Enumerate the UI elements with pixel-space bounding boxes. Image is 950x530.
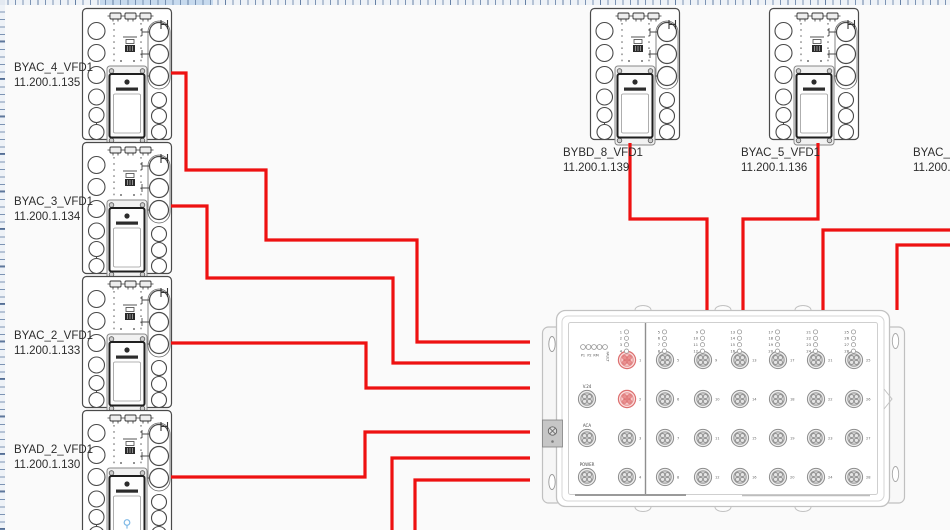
switch-port-13[interactable] bbox=[731, 351, 748, 368]
connection-line-BYAC_4_VFD1[interactable] bbox=[171, 73, 530, 342]
svg-text:26: 26 bbox=[866, 398, 871, 402]
svg-text:19: 19 bbox=[768, 343, 773, 347]
switch-port-15[interactable] bbox=[731, 429, 748, 446]
switch-port-power[interactable] bbox=[578, 468, 595, 485]
switch-port-26[interactable] bbox=[845, 390, 862, 407]
switch-port-2[interactable] bbox=[618, 390, 635, 407]
device-name: BYAC_3_VFD1 bbox=[14, 195, 93, 210]
svg-text:5: 5 bbox=[677, 359, 679, 363]
switch-port-8[interactable] bbox=[656, 468, 673, 485]
switch-port-25[interactable] bbox=[845, 351, 862, 368]
connection-line-BYAC_6_[interactable] bbox=[897, 245, 950, 310]
svg-text:23: 23 bbox=[806, 343, 811, 347]
device-ip: 11.200.1.133 bbox=[14, 344, 93, 359]
device-label-byac3[interactable]: BYAC_3_VFD1 11.200.1.134 bbox=[14, 195, 93, 225]
switch-port-4[interactable] bbox=[618, 468, 635, 485]
device-name: BYAC_4_VFD1 bbox=[14, 61, 93, 76]
device-label-byac5[interactable]: BYAC_5_VFD1 11.200.1.136 bbox=[741, 146, 820, 176]
device-ip: 11.200.1 bbox=[913, 161, 950, 176]
svg-text:16: 16 bbox=[752, 476, 757, 480]
diagram-canvas[interactable]: P1P2RMFAULT V.24ACAPOWER 112233445566778… bbox=[0, 0, 950, 530]
ruler-left bbox=[0, 0, 5, 530]
switch-port-11[interactable] bbox=[694, 429, 711, 446]
device-label-byac2[interactable]: BYAC_2_VFD1 11.200.1.133 bbox=[14, 329, 93, 359]
svg-text:7: 7 bbox=[677, 437, 679, 441]
device-name: BYAC_2_VFD1 bbox=[14, 329, 93, 344]
connection-line-BYAC_2_VFD1[interactable] bbox=[171, 343, 530, 388]
svg-text:2: 2 bbox=[639, 398, 641, 402]
svg-text:RM: RM bbox=[593, 354, 598, 358]
vfd-device-byac5[interactable] bbox=[770, 9, 859, 146]
switch-port-1[interactable] bbox=[618, 351, 635, 368]
connection-line-BYAC_3_VFD1[interactable] bbox=[171, 206, 530, 363]
svg-text:28: 28 bbox=[866, 476, 871, 480]
svg-text:17: 17 bbox=[790, 359, 795, 363]
svg-text:3: 3 bbox=[620, 343, 622, 347]
switch-port-17[interactable] bbox=[769, 351, 786, 368]
device-ip: 11.200.1.134 bbox=[14, 210, 93, 225]
device-ip: 11.200.1.130 bbox=[14, 458, 93, 473]
switch-port-aca[interactable] bbox=[578, 429, 595, 446]
connection-line-BYAD_2_VFD1[interactable] bbox=[171, 432, 530, 477]
svg-text:18: 18 bbox=[790, 398, 795, 402]
device-label-byac6[interactable]: BYAC_6_ 11.200.1 bbox=[913, 146, 950, 176]
switch-port-6[interactable] bbox=[656, 390, 673, 407]
svg-text:14: 14 bbox=[730, 337, 735, 341]
vfd-device-byac2[interactable] bbox=[83, 277, 172, 414]
switch-port-14[interactable] bbox=[731, 390, 748, 407]
ethernet-switch[interactable]: P1P2RMFAULT V.24ACAPOWER 112233445566778… bbox=[543, 306, 905, 512]
svg-text:ACA: ACA bbox=[583, 423, 591, 428]
switch-port-16[interactable] bbox=[731, 468, 748, 485]
device-name: BYBD_8_VFD1 bbox=[563, 146, 643, 161]
svg-text:27: 27 bbox=[844, 343, 849, 347]
svg-text:15: 15 bbox=[752, 437, 757, 441]
svg-text:25: 25 bbox=[866, 359, 871, 363]
switch-port-20[interactable] bbox=[769, 468, 786, 485]
svg-text:1: 1 bbox=[639, 359, 641, 363]
switch-port-9[interactable] bbox=[694, 351, 711, 368]
vfd-device-byac3[interactable] bbox=[83, 143, 172, 280]
vfd-device-byac4[interactable] bbox=[83, 9, 172, 146]
svg-text:POWER: POWER bbox=[580, 462, 595, 467]
device-ip: 11.200.1.135 bbox=[14, 76, 93, 91]
connection-line-BYAC_6_[interactable] bbox=[823, 230, 950, 310]
switch-port-19[interactable] bbox=[769, 429, 786, 446]
ruler-highlight bbox=[100, 0, 213, 5]
switch-port-22[interactable] bbox=[807, 390, 824, 407]
device-name: BYAD_2_VFD1 bbox=[14, 443, 93, 458]
connection-line-offscreen-bottom-1[interactable] bbox=[392, 458, 530, 530]
switch-port-23[interactable] bbox=[807, 429, 824, 446]
svg-text:14: 14 bbox=[752, 398, 757, 402]
switch-port-28[interactable] bbox=[845, 468, 862, 485]
device-label-byac4[interactable]: BYAC_4_VFD1 11.200.1.135 bbox=[14, 61, 93, 91]
svg-text:3: 3 bbox=[639, 437, 641, 441]
svg-text:25: 25 bbox=[844, 330, 849, 334]
connection-line-offscreen-bottom-2[interactable] bbox=[415, 480, 530, 530]
svg-text:28: 28 bbox=[844, 350, 849, 354]
svg-text:FAULT: FAULT bbox=[606, 352, 610, 363]
device-label-byad2[interactable]: BYAD_2_VFD1 11.200.1.130 bbox=[14, 443, 93, 473]
svg-text:27: 27 bbox=[866, 437, 871, 441]
svg-text:18: 18 bbox=[768, 337, 773, 341]
switch-port-12[interactable] bbox=[694, 468, 711, 485]
svg-text:24: 24 bbox=[828, 476, 833, 480]
diagram-svg: P1P2RMFAULT V.24ACAPOWER 112233445566778… bbox=[0, 0, 950, 530]
svg-text:16: 16 bbox=[730, 350, 735, 354]
svg-text:15: 15 bbox=[730, 343, 735, 347]
switch-port-27[interactable] bbox=[845, 429, 862, 446]
svg-text:P1: P1 bbox=[581, 354, 585, 358]
switch-port-v.24[interactable] bbox=[578, 390, 595, 407]
switch-port-7[interactable] bbox=[656, 429, 673, 446]
switch-port-5[interactable] bbox=[656, 351, 673, 368]
svg-text:12: 12 bbox=[693, 350, 698, 354]
svg-text:P2: P2 bbox=[587, 354, 591, 358]
svg-text:22: 22 bbox=[806, 337, 811, 341]
svg-text:11: 11 bbox=[715, 437, 720, 441]
svg-text:24: 24 bbox=[806, 350, 811, 354]
switch-port-3[interactable] bbox=[618, 429, 635, 446]
switch-side-ports: V.24ACAPOWER bbox=[578, 384, 595, 486]
svg-text:21: 21 bbox=[806, 330, 811, 334]
device-name: BYAC_6_ bbox=[913, 146, 950, 161]
switch-port-24[interactable] bbox=[807, 468, 824, 485]
svg-text:13: 13 bbox=[730, 330, 735, 334]
svg-text:23: 23 bbox=[828, 437, 833, 441]
svg-text:1: 1 bbox=[620, 330, 622, 334]
svg-text:V.24: V.24 bbox=[583, 384, 592, 389]
svg-text:22: 22 bbox=[828, 398, 833, 402]
svg-text:2: 2 bbox=[620, 337, 622, 341]
svg-text:5: 5 bbox=[658, 330, 660, 334]
device-ip: 11.200.1.136 bbox=[741, 161, 820, 176]
vfd-device-byad2[interactable] bbox=[83, 411, 172, 530]
ruler-top bbox=[0, 0, 950, 5]
svg-text:10: 10 bbox=[715, 398, 720, 402]
svg-text:19: 19 bbox=[790, 437, 795, 441]
svg-text:26: 26 bbox=[844, 337, 849, 341]
switch-port-10[interactable] bbox=[694, 390, 711, 407]
switch-port-21[interactable] bbox=[807, 351, 824, 368]
device-name: BYAC_5_VFD1 bbox=[741, 146, 820, 161]
svg-text:20: 20 bbox=[790, 476, 795, 480]
svg-text:11: 11 bbox=[693, 343, 698, 347]
svg-text:17: 17 bbox=[768, 330, 773, 334]
switch-port-18[interactable] bbox=[769, 390, 786, 407]
vfd-device-bybd8[interactable] bbox=[591, 9, 680, 146]
svg-text:13: 13 bbox=[752, 359, 757, 363]
device-ip: 11.200.1.139 bbox=[563, 161, 643, 176]
svg-text:20: 20 bbox=[768, 350, 773, 354]
ruler-corner bbox=[0, 0, 5, 5]
svg-text:21: 21 bbox=[828, 359, 833, 363]
svg-text:10: 10 bbox=[693, 337, 698, 341]
svg-text:12: 12 bbox=[715, 476, 720, 480]
svg-text:7: 7 bbox=[658, 343, 660, 347]
device-label-bybd8[interactable]: BYBD_8_VFD1 11.200.1.139 bbox=[563, 146, 643, 176]
